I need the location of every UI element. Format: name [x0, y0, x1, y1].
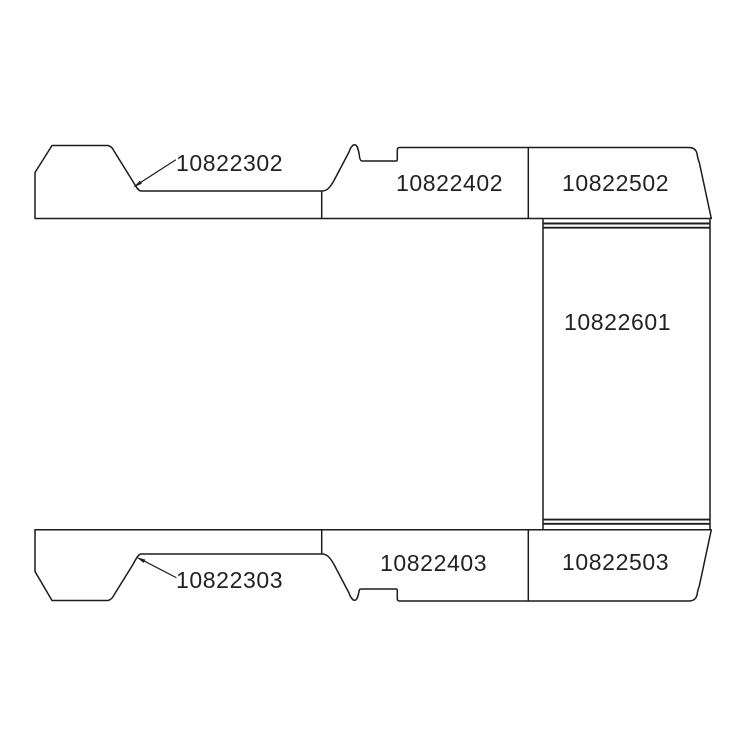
part-label-bottom-left: 10822303: [176, 567, 283, 593]
top-leader-line: [141, 160, 176, 182]
parts-diagram: 10822302 10822402 10822502 10822601 1082…: [0, 0, 750, 750]
top-leader: [133, 160, 176, 188]
part-label-bottom-right: 10822503: [562, 549, 669, 575]
bottom-leader: [136, 557, 176, 578]
bottom-leader-arrowhead-icon: [136, 557, 145, 563]
part-label-top-right: 10822502: [562, 170, 669, 196]
part-label-right-panel: 10822601: [564, 309, 671, 335]
part-label-bottom-middle: 10822403: [380, 550, 487, 576]
bottom-leader-line: [145, 561, 177, 577]
right-panel-outline: [543, 219, 710, 529]
part-label-top-middle: 10822402: [396, 170, 503, 196]
part-label-top-left: 10822302: [176, 150, 283, 176]
diagram-canvas: 10822302 10822402 10822502 10822601 1082…: [0, 0, 750, 750]
